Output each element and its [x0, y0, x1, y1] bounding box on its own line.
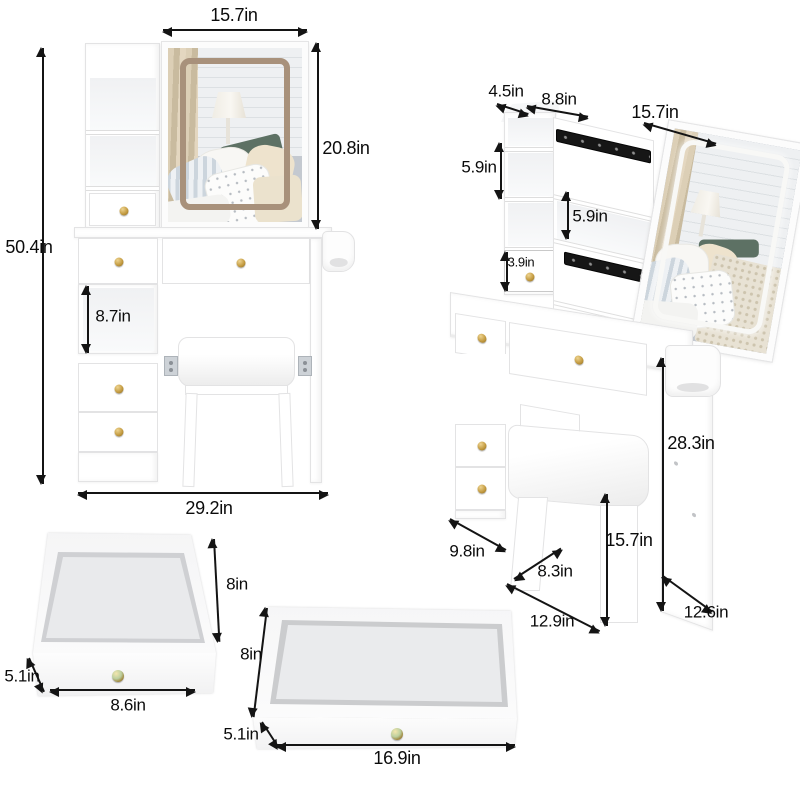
hair-dryer-holder	[322, 231, 355, 272]
stool-leg	[278, 393, 293, 487]
angle-base	[455, 510, 506, 519]
stool-cushion	[178, 337, 295, 387]
front-drawer	[78, 238, 158, 284]
angle-curved-side-panel	[455, 354, 506, 426]
arrow-square-drawer-width	[50, 689, 195, 691]
dim-table-depth: 12.6in	[684, 604, 729, 621]
dim-square-drawer-height: 5.1in	[4, 668, 39, 685]
dim-wide-drawer-width: 16.9in	[373, 749, 420, 767]
drawer-slide-rail	[556, 129, 651, 164]
arrow-wide-drawer-width	[277, 744, 515, 746]
mounting-bracket	[298, 356, 312, 376]
dim-table-height: 28.3in	[667, 434, 714, 452]
stool-leg	[182, 393, 197, 487]
drawer-knob	[478, 442, 487, 451]
mirror-reflection	[639, 128, 800, 353]
dim-stool-seat-width: 12.9in	[530, 613, 575, 630]
dim-shelf-opening-height: 8.7in	[95, 308, 130, 325]
mounting-bracket	[164, 356, 178, 376]
dim-overall-width: 29.2in	[185, 499, 232, 517]
angle-drawer	[455, 424, 506, 467]
arrow-mirror-width	[163, 29, 307, 31]
front-hutch-shelf-opening	[90, 136, 156, 186]
dim-small-drawer-height: 3.9in	[508, 256, 535, 269]
front-hutch-cabinet	[85, 43, 160, 229]
angle-drawer	[455, 313, 506, 361]
front-mirror	[162, 42, 308, 228]
dim-square-drawer-depth: 8in	[226, 576, 248, 593]
stool-skirt	[185, 385, 288, 395]
wide-drawer-view	[240, 600, 532, 755]
shelf-board	[86, 130, 159, 135]
drawer-knob	[112, 670, 124, 682]
dim-square-drawer-width: 8.6in	[110, 697, 145, 714]
angle-right-panel	[661, 360, 713, 631]
front-base	[78, 452, 158, 482]
front-drawer	[78, 412, 158, 452]
dim-left-shelf-height: 5.9in	[461, 159, 496, 176]
drawer-knob	[526, 273, 535, 282]
dim-overall-height: 50.4in	[5, 238, 52, 256]
drawer-knob	[115, 258, 124, 267]
drawer-knob	[478, 333, 487, 343]
arrow-overall-height	[42, 48, 44, 484]
hair-dryer-holder	[665, 345, 721, 397]
dim-sliding-mirror-width: 15.7in	[631, 103, 678, 121]
arrow-stool-height	[606, 494, 608, 626]
arrow-shelf-opening-height	[87, 286, 89, 353]
mirror-reflection	[168, 48, 302, 222]
arrow-middle-shelf-height	[567, 192, 569, 239]
front-hutch-drawer	[89, 193, 156, 226]
drawer-knob	[120, 207, 129, 216]
arrow-mirror-height	[317, 43, 319, 229]
square-drawer-view	[33, 530, 218, 698]
front-desk-top	[74, 227, 332, 238]
arrow-left-shelf-height	[500, 143, 502, 199]
drawer-knob	[478, 485, 487, 494]
drawer-knob	[575, 355, 584, 365]
dim-wide-drawer-depth: 8in	[240, 646, 262, 663]
dim-side-depth: 9.8in	[449, 543, 484, 560]
dim-mirror-height: 20.8in	[322, 139, 369, 157]
dim-mirror-width: 15.7in	[210, 6, 257, 24]
angle-drawer	[455, 467, 506, 510]
dim-stool-height: 15.7in	[605, 531, 652, 549]
product-dimension-image: 15.7in 20.8in 50.4in 8.7in 29.2in	[0, 0, 800, 800]
dim-knee-room-width: 8.3in	[537, 563, 572, 580]
dim-wide-drawer-height: 5.1in	[223, 726, 258, 743]
dim-middle-shelf-height: 5.9in	[572, 208, 607, 225]
arrow-overall-width	[78, 492, 328, 494]
drawer-knob	[237, 259, 246, 268]
front-hutch-shelf-opening	[90, 78, 156, 130]
front-center-drawer	[162, 238, 310, 284]
front-drawer	[78, 363, 158, 412]
drawer-knob	[115, 385, 124, 394]
shelf-board	[86, 186, 159, 191]
dim-top-depth: 4.5in	[488, 83, 523, 100]
drawer-knob	[391, 728, 403, 740]
dim-hutch-width: 8.8in	[541, 91, 576, 108]
drawer-knob	[115, 428, 124, 437]
